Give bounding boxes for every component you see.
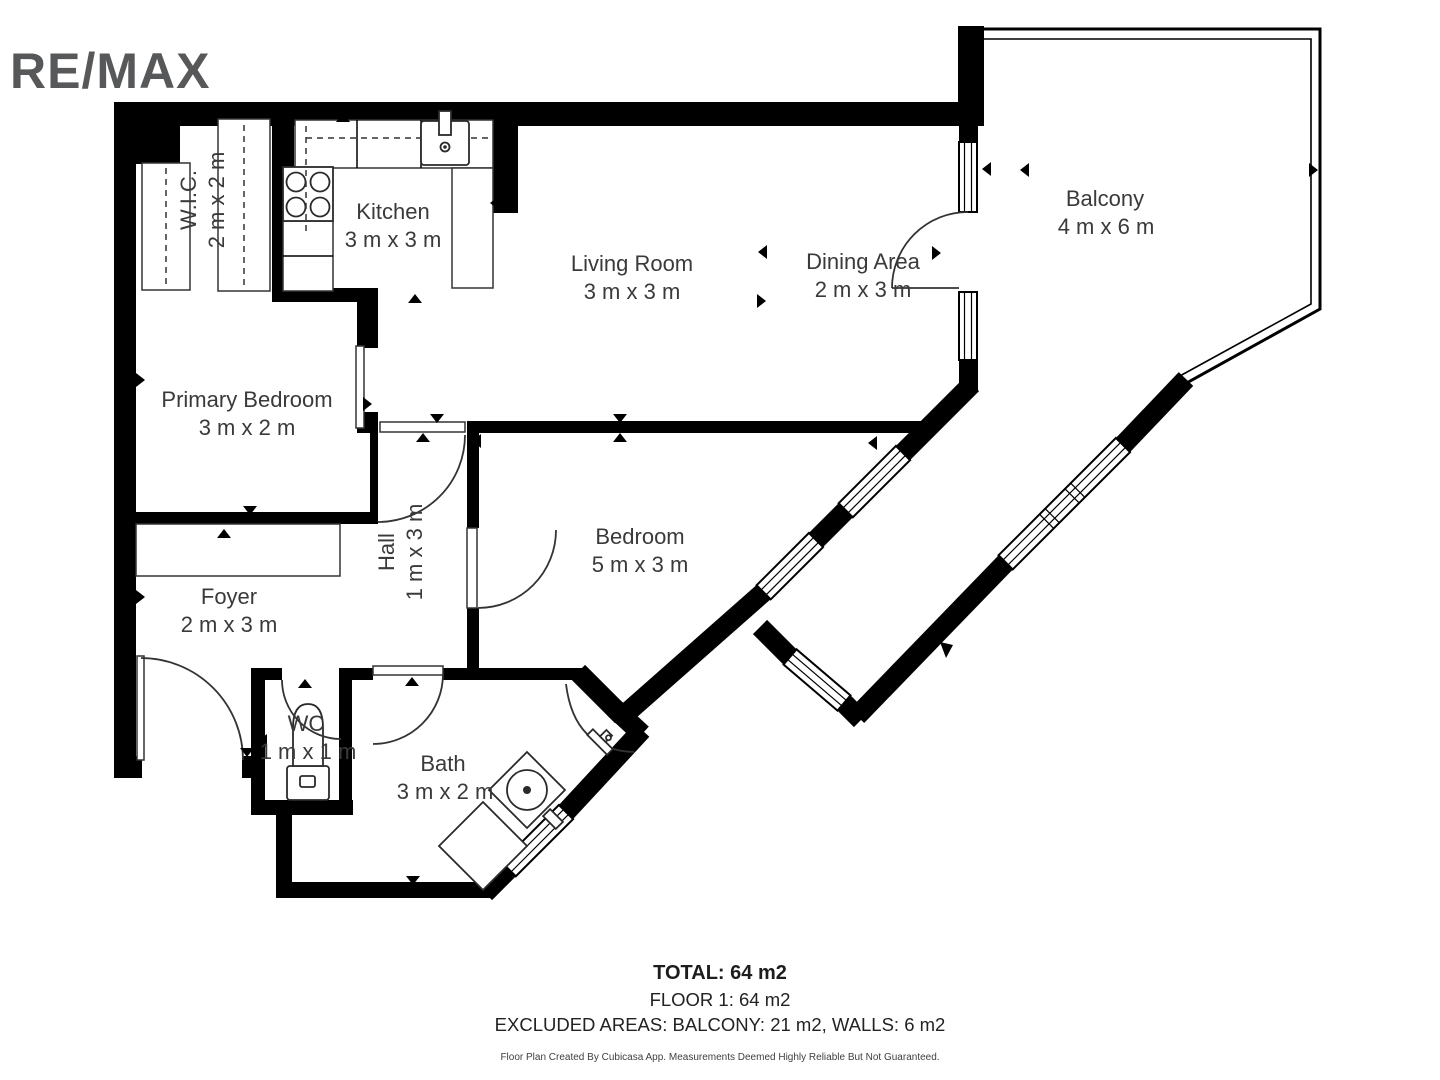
bedroom-door-leaf xyxy=(467,528,477,608)
wall-arrow-marker xyxy=(408,294,422,303)
room-label-balcony: Balcony xyxy=(1066,186,1144,211)
room-label-primary: Primary Bedroom xyxy=(161,387,332,412)
room-label-wic: W.I.C. xyxy=(176,170,201,230)
wall-arrow-marker xyxy=(757,294,766,308)
summary-excluded: EXCLUDED AREAS: BALCONY: 21 m2, WALLS: 6… xyxy=(0,1014,1440,1036)
wall-diag-envelope-top xyxy=(1123,379,1186,445)
room-label-hall: Hall xyxy=(374,533,399,571)
wall-wc-bottom xyxy=(251,800,353,815)
wall-arrow-marker xyxy=(868,436,877,450)
wall-arrow-marker xyxy=(758,245,767,259)
room-dims-wic: 2 m x 2 m xyxy=(204,152,229,249)
room-label-bath: Bath xyxy=(420,751,465,776)
room-label-wc: WC xyxy=(288,711,325,736)
closet-foyer xyxy=(136,524,340,576)
window-bedroom-1 xyxy=(839,446,910,517)
balcony-railing xyxy=(970,29,1320,385)
room-dims-bath: 3 m x 2 m xyxy=(397,779,494,804)
wall-diag-bedroom-mid xyxy=(816,508,848,540)
wall-left xyxy=(114,102,136,778)
walls-diagonal xyxy=(485,379,1186,893)
wall-primary-foyer xyxy=(114,512,378,524)
wall-arrow-marker xyxy=(982,162,991,176)
window-dining-upper xyxy=(959,142,977,212)
wall-arrow-marker xyxy=(613,433,627,442)
summary-disclaimer: Floor Plan Created By Cubicasa App. Meas… xyxy=(0,1052,1440,1063)
summary-floor: FLOOR 1: 64 m2 xyxy=(0,989,1440,1011)
room-dims-hall: 1 m x 3 m xyxy=(402,504,427,601)
wall-arrow-marker xyxy=(363,397,372,411)
floor-plan-svg: W.I.C. 2 m x 2 m Kitchen 3 m x 3 m Livin… xyxy=(0,0,1440,1080)
wall-diag-envelope-corner xyxy=(842,701,861,720)
bath-door-leaf xyxy=(373,666,443,675)
room-label-kitchen: Kitchen xyxy=(356,199,429,224)
wall-kitchen-living-stub xyxy=(493,102,518,213)
room-dims-primary: 3 m x 2 m xyxy=(199,415,296,440)
room-dims-balcony: 4 m x 6 m xyxy=(1058,214,1155,239)
window-bedroom-2 xyxy=(757,533,823,599)
washbasin xyxy=(489,752,565,829)
wall-diag-envelope-long xyxy=(857,560,1008,716)
wall-arrow-marker xyxy=(940,642,953,658)
floorplan-page: RE/MAX xyxy=(0,0,1440,1080)
wall-hall-right-lower xyxy=(467,608,479,668)
window-envelope xyxy=(999,438,1131,570)
window-wedge xyxy=(784,649,851,710)
wall-arrow-marker xyxy=(1309,163,1318,177)
wall-living-bottom xyxy=(467,421,937,433)
wall-arrow-marker xyxy=(136,373,145,387)
room-dims-kitchen: 3 m x 3 m xyxy=(345,227,442,252)
room-dims-dining: 2 m x 3 m xyxy=(815,277,912,302)
balcony-railing-outer xyxy=(970,29,1320,385)
wall-balcony-pillar xyxy=(958,26,984,126)
kitchen-counter-right xyxy=(452,168,493,288)
wall-diag-dining-corner xyxy=(903,384,972,453)
wall-diag-bedroom-low xyxy=(622,590,766,717)
wall-arrow-marker xyxy=(1020,163,1029,177)
room-dims-wc: 1 m x 1 m xyxy=(260,739,357,764)
wall-arrow-marker xyxy=(932,246,941,260)
wall-arrow-marker xyxy=(405,677,419,686)
wall-hall-right-upper xyxy=(467,433,479,528)
room-dims-living: 3 m x 3 m xyxy=(584,279,681,304)
room-label-dining: Dining Area xyxy=(806,249,921,274)
room-dims-bedroom: 5 m x 3 m xyxy=(592,552,689,577)
hall-door-leaf xyxy=(380,422,465,432)
wall-diag-wedge xyxy=(760,627,792,659)
wall-primary-right-upper xyxy=(357,302,378,348)
wall-hall-left xyxy=(370,433,378,512)
room-dims-foyer: 2 m x 3 m xyxy=(181,612,278,637)
room-label-foyer: Foyer xyxy=(201,584,257,609)
summary-total: TOTAL: 64 m2 xyxy=(0,962,1440,985)
entry-door-arc xyxy=(141,658,243,760)
room-label-bedroom: Bedroom xyxy=(595,524,684,549)
room-label-living: Living Room xyxy=(571,251,693,276)
entry-door-leaf xyxy=(137,656,144,760)
bedroom-door-arc xyxy=(478,530,556,608)
window-dining-lower xyxy=(959,292,977,360)
stove xyxy=(283,167,333,221)
wall-corner-block xyxy=(136,102,180,164)
summary-block: TOTAL: 64 m2 FLOOR 1: 64 m2 EXCLUDED ARE… xyxy=(0,962,1440,1063)
wall-bath-bottom xyxy=(276,882,490,898)
wall-arrow-marker xyxy=(298,679,312,688)
wall-bath-top xyxy=(443,668,583,680)
wall-wc-right xyxy=(339,668,352,803)
wall-arrow-marker xyxy=(416,433,430,442)
primary-sliding-door xyxy=(356,346,364,428)
wall-arrow-marker xyxy=(136,590,145,604)
